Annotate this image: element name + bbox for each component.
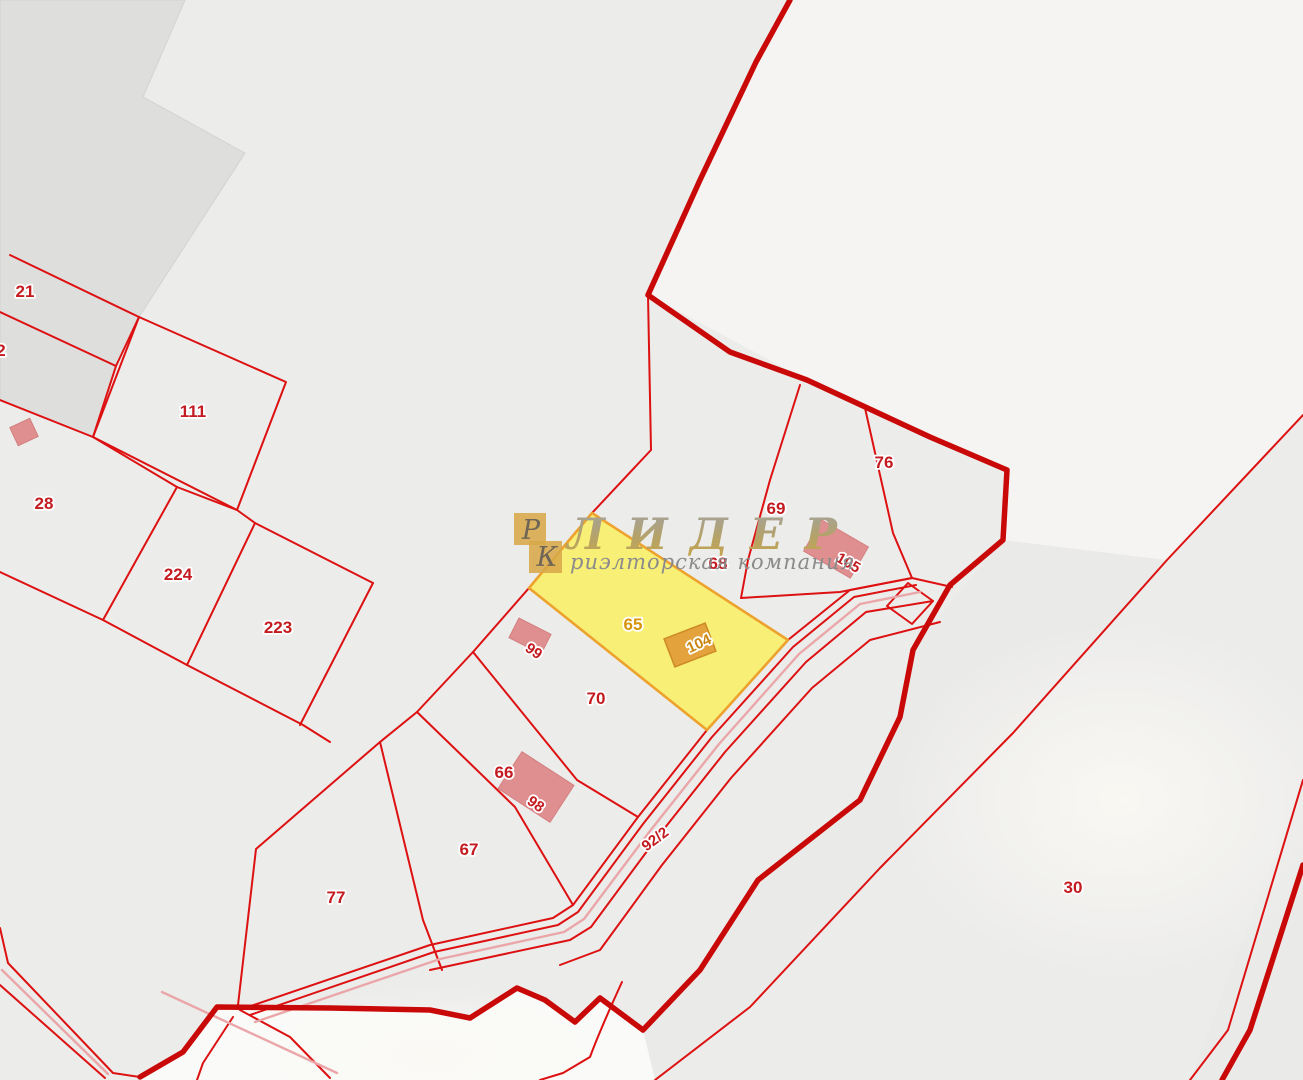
parcel-label-65: 65 <box>624 615 643 634</box>
parcel-label-70: 70 <box>587 689 606 708</box>
parcel-label-21: 21 <box>16 282 35 301</box>
parcel-label-224: 224 <box>164 565 193 584</box>
parcel-label-77: 77 <box>327 888 346 907</box>
parcel-label-66: 66 <box>495 763 514 782</box>
parcel-label-2: 2 <box>0 341 6 360</box>
parcel-label-67: 67 <box>460 840 479 859</box>
watermark-letter-k: К <box>536 542 559 573</box>
watermark-subtitle: риэлторская компания <box>570 550 855 574</box>
cadastral-map-viewport: 21 2 111 28 224 223 76 69 68 65 70 66 67… <box>0 0 1303 1080</box>
parcel-label-28: 28 <box>35 494 54 513</box>
cadastral-map-canvas[interactable]: 21 2 111 28 224 223 76 69 68 65 70 66 67… <box>0 0 1303 1080</box>
parcel-label-223: 223 <box>264 618 292 637</box>
parcel-label-76: 76 <box>875 453 894 472</box>
parcel-label-111: 111 <box>180 402 207 421</box>
parcel-label-30: 30 <box>1064 878 1083 897</box>
